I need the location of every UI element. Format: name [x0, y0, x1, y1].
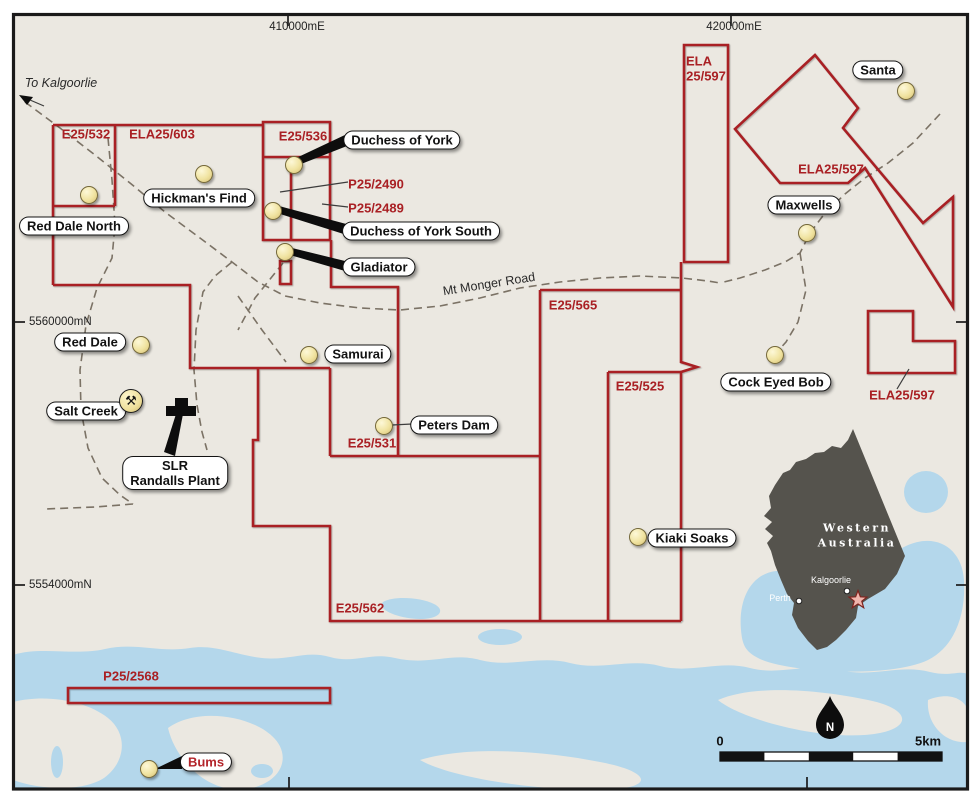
tenement-label-ela25-597: ELA25/597: [869, 388, 935, 403]
site-label-hickman-s-find: Hickman's Find: [143, 189, 255, 208]
road-label-mt-monger-road: Mt Monger Road: [442, 270, 536, 298]
site-label-kiaki-soaks: Kiaki Soaks: [648, 529, 737, 548]
site-label-maxwells: Maxwells: [767, 196, 840, 215]
site-dot-hickman-s-find: [195, 165, 213, 183]
tenement-label-e25-532: E25/532: [62, 127, 110, 142]
tenement-label-p25-2490: P25/2490: [348, 177, 404, 192]
tenement-label-e25-531: E25/531: [348, 436, 396, 451]
site-dot-red-dale-north: [80, 186, 98, 204]
site-label-cock-eyed-bob: Cock Eyed Bob: [720, 373, 831, 392]
crossed-hammers-icon: ⚒: [119, 389, 143, 413]
inset-city-label-kalgoorlie: Kalgoorlie: [811, 575, 851, 585]
site-label-line: Santa: [860, 63, 895, 78]
tenement-label-p25-2489: P25/2489: [348, 201, 404, 216]
site-label-line: Duchess of York: [351, 133, 452, 148]
inset-region-label: Western: [823, 522, 891, 535]
tenement-label-ela25-597: ELA25/597: [798, 162, 864, 177]
site-label-gladiator: Gladiator: [342, 258, 415, 277]
site-label-line: Duchess of York South: [350, 224, 492, 239]
inset-city-label-perth: Perth: [769, 593, 791, 603]
site-label-line: Red Dale: [62, 335, 118, 350]
scalebar-end-label: 5km: [915, 734, 941, 749]
inset-region-label: Australia: [818, 537, 897, 550]
site-label-line: SLR: [130, 458, 220, 473]
tenement-label-e25-565: E25/565: [549, 298, 597, 313]
site-label-samurai: Samurai: [324, 345, 391, 364]
labels-overlay: 410000mE420000mE5560000mN5554000mNE25/53…: [0, 0, 980, 803]
site-dot-cock-eyed-bob: [766, 346, 784, 364]
site-label-line: Red Dale North: [27, 219, 121, 234]
tenement-label-e25-536: E25/536: [279, 129, 327, 144]
site-label-red-dale-north: Red Dale North: [19, 217, 129, 236]
site-label-duchess-of-york: Duchess of York: [343, 131, 460, 150]
grid-label-420000me: 420000mE: [706, 21, 762, 33]
site-label-slr-randalls-plant: SLRRandalls Plant: [122, 456, 228, 490]
scalebar-zero-label: 0: [716, 734, 723, 749]
road-label-to-kalgoorlie: To Kalgoorlie: [25, 76, 98, 90]
tenement-label-e25-562: E25/562: [336, 601, 384, 616]
grid-label-410000me: 410000mE: [269, 21, 325, 33]
site-dot-duchess-of-york: [285, 156, 303, 174]
site-label-line: Samurai: [332, 347, 383, 362]
site-label-line: Cock Eyed Bob: [728, 375, 823, 390]
site-dot-maxwells: [798, 224, 816, 242]
site-dot-bums: [140, 760, 158, 778]
site-label-line: Salt Creek: [54, 404, 118, 419]
site-dot-santa: [897, 82, 915, 100]
site-label-red-dale: Red Dale: [54, 333, 126, 352]
site-label-line: Maxwells: [775, 198, 832, 213]
grid-label-5554000mn: 5554000mN: [29, 579, 92, 591]
site-dot-peters-dam: [375, 417, 393, 435]
site-dot-samurai: [300, 346, 318, 364]
site-label-peters-dam: Peters Dam: [410, 416, 498, 435]
site-label-line: Hickman's Find: [151, 191, 247, 206]
tenement-label-p25-2568: P25/2568: [103, 669, 159, 684]
site-dot-kiaki-soaks: [629, 528, 647, 546]
site-label-line: Peters Dam: [418, 418, 490, 433]
tenement-label-ela25-603: ELA25/603: [129, 127, 195, 142]
north-arrow-letter: N: [826, 722, 834, 734]
site-label-bums: Bums: [180, 753, 232, 772]
site-label-santa: Santa: [852, 61, 903, 80]
site-dot-duchess-of-york-south: [264, 202, 282, 220]
site-label-line: Gladiator: [350, 260, 407, 275]
site-dot-red-dale: [132, 336, 150, 354]
map-stage: 410000mE420000mE5560000mN5554000mNE25/53…: [0, 0, 980, 803]
site-label-line: Randalls Plant: [130, 473, 220, 488]
site-label-duchess-of-york-south: Duchess of York South: [342, 222, 500, 241]
tenement-label-25-597: 25/597: [686, 69, 726, 84]
site-label-line: Bums: [188, 755, 224, 770]
tenement-label-e25-525: E25/525: [616, 379, 664, 394]
tenement-label-ela: ELA: [686, 54, 712, 69]
site-label-salt-creek: Salt Creek: [46, 402, 126, 421]
grid-label-5560000mn: 5560000mN: [29, 316, 92, 328]
site-dot-gladiator: [276, 243, 294, 261]
site-label-line: Kiaki Soaks: [656, 531, 729, 546]
